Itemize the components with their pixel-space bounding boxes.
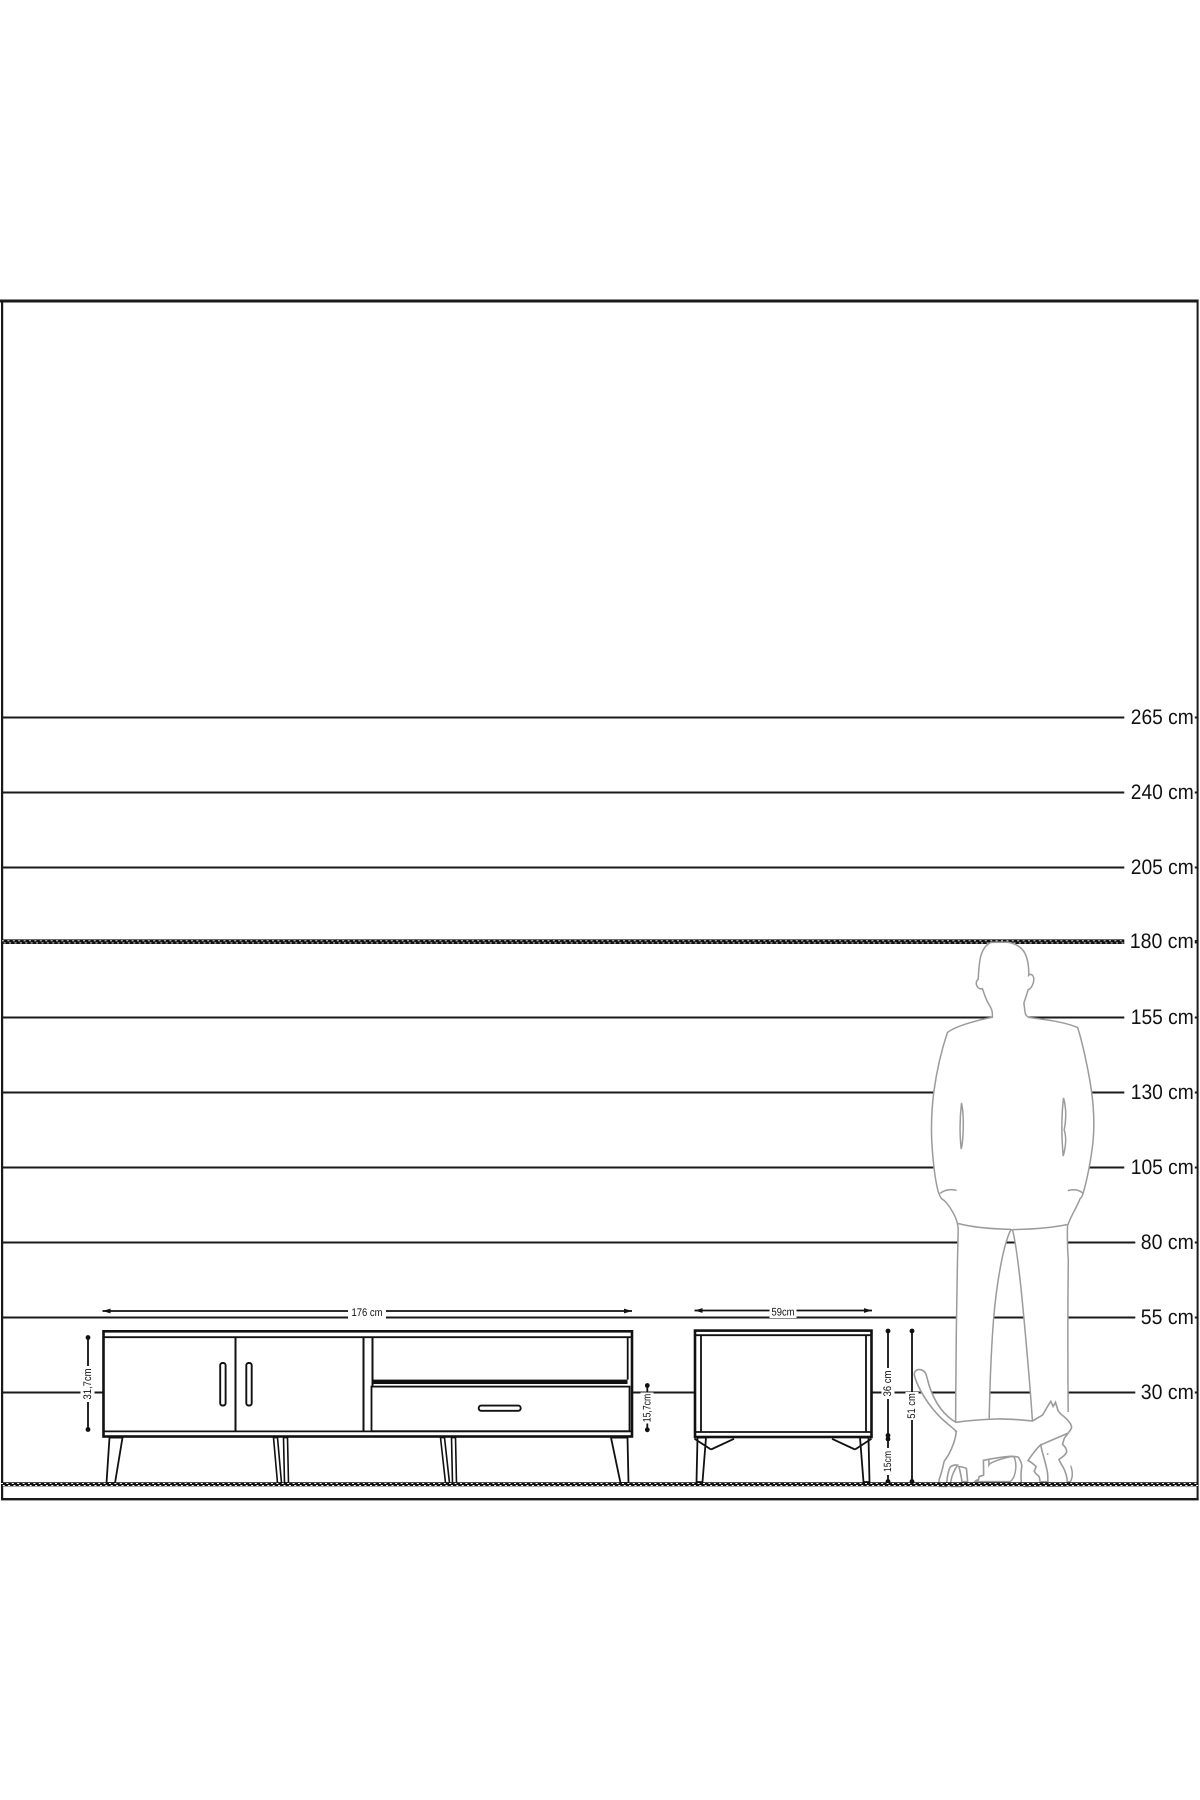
svg-text:51 cm: 51 cm <box>906 1393 918 1419</box>
svg-text:55 cm: 55 cm <box>1141 1306 1194 1329</box>
svg-text:15cm: 15cm <box>882 1451 894 1472</box>
svg-text:59cm: 59cm <box>772 1307 795 1319</box>
svg-text:130 cm: 130 cm <box>1131 1081 1194 1104</box>
svg-text:36 cm: 36 cm <box>882 1371 894 1397</box>
svg-text:205 cm: 205 cm <box>1131 856 1194 879</box>
svg-text:80 cm: 80 cm <box>1141 1231 1194 1254</box>
svg-text:180 cm: 180 cm <box>1130 930 1194 953</box>
svg-text:176 cm: 176 cm <box>352 1307 383 1319</box>
svg-text:265 cm: 265 cm <box>1131 706 1194 729</box>
svg-text:31,7cm: 31,7cm <box>82 1369 94 1400</box>
svg-text:15,7cm: 15,7cm <box>641 1394 653 1423</box>
svg-text:30 cm: 30 cm <box>1141 1381 1194 1404</box>
svg-text:105 cm: 105 cm <box>1131 1156 1194 1179</box>
svg-text:240 cm: 240 cm <box>1131 781 1194 804</box>
svg-text:155 cm: 155 cm <box>1131 1006 1194 1029</box>
